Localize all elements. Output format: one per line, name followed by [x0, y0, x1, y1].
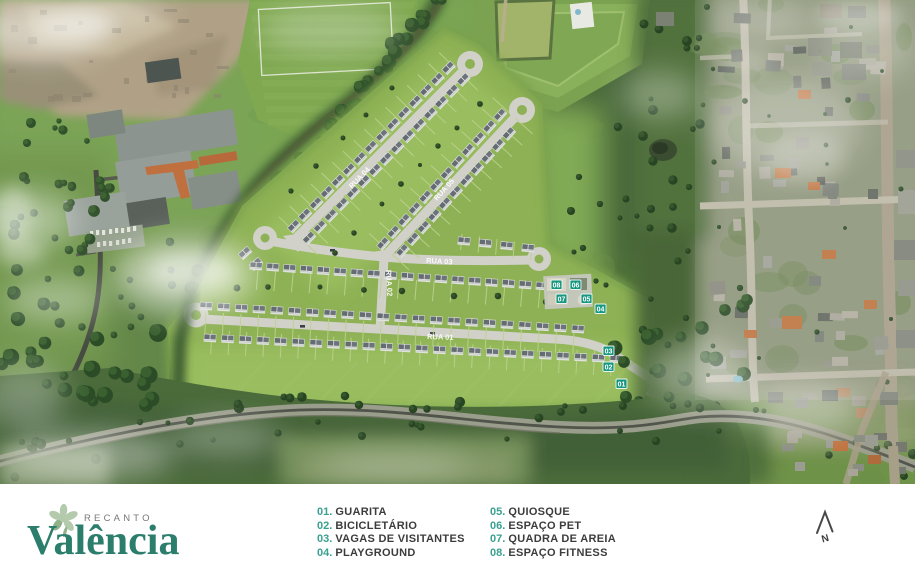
svg-text:RUA 01: RUA 01 — [427, 332, 454, 342]
svg-text:05: 05 — [583, 296, 591, 303]
svg-text:07: 07 — [558, 296, 566, 303]
svg-text:06: 06 — [572, 282, 580, 289]
svg-text:02: 02 — [605, 364, 613, 371]
svg-text:RUA 02: RUA 02 — [384, 270, 394, 297]
svg-text:01: 01 — [618, 381, 626, 388]
svg-text:N: N — [820, 533, 830, 545]
svg-text:03: 03 — [605, 348, 613, 355]
svg-text:RUA 03: RUA 03 — [426, 256, 453, 266]
svg-text:08: 08 — [553, 282, 561, 289]
svg-text:04: 04 — [597, 306, 605, 313]
